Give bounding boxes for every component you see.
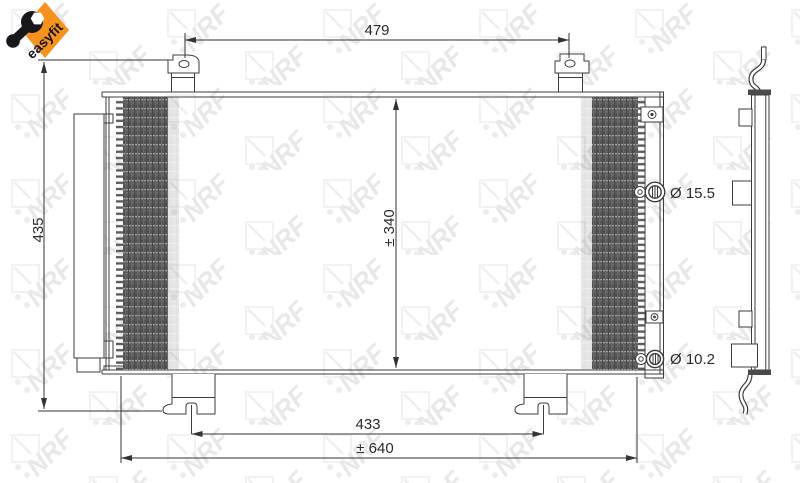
label-diameter-outlet: Ø 10.2: [670, 351, 715, 368]
side-tab-2: [733, 181, 752, 205]
core-left-fins: [123, 97, 168, 370]
mounting-tab-top: [641, 107, 663, 122]
drawing-canvas: NRF NRF: [0, 0, 800, 483]
side-tab-3: [739, 311, 752, 327]
side-tab-4: [732, 344, 758, 367]
dim-label-435: 435: [30, 217, 47, 242]
dim-label-340: ± 340: [381, 209, 398, 246]
technical-drawing: NRF NRF: [0, 0, 800, 483]
core-right-teeth: [638, 97, 645, 370]
side-bottom-cap: [748, 370, 771, 376]
dim-label-640: ± 640: [356, 440, 393, 457]
mounting-tab-bottom: [646, 311, 663, 323]
core-left-teeth: [116, 97, 123, 370]
side-tab-1: [739, 109, 752, 126]
top-bracket-left: [168, 55, 199, 92]
core-right-fins: [592, 97, 638, 370]
dim-label-433: 433: [355, 416, 380, 433]
label-diameter-inlet: Ø 15.5: [670, 185, 715, 202]
dim-label-479: 479: [364, 22, 389, 39]
side-top-cap: [748, 90, 771, 96]
